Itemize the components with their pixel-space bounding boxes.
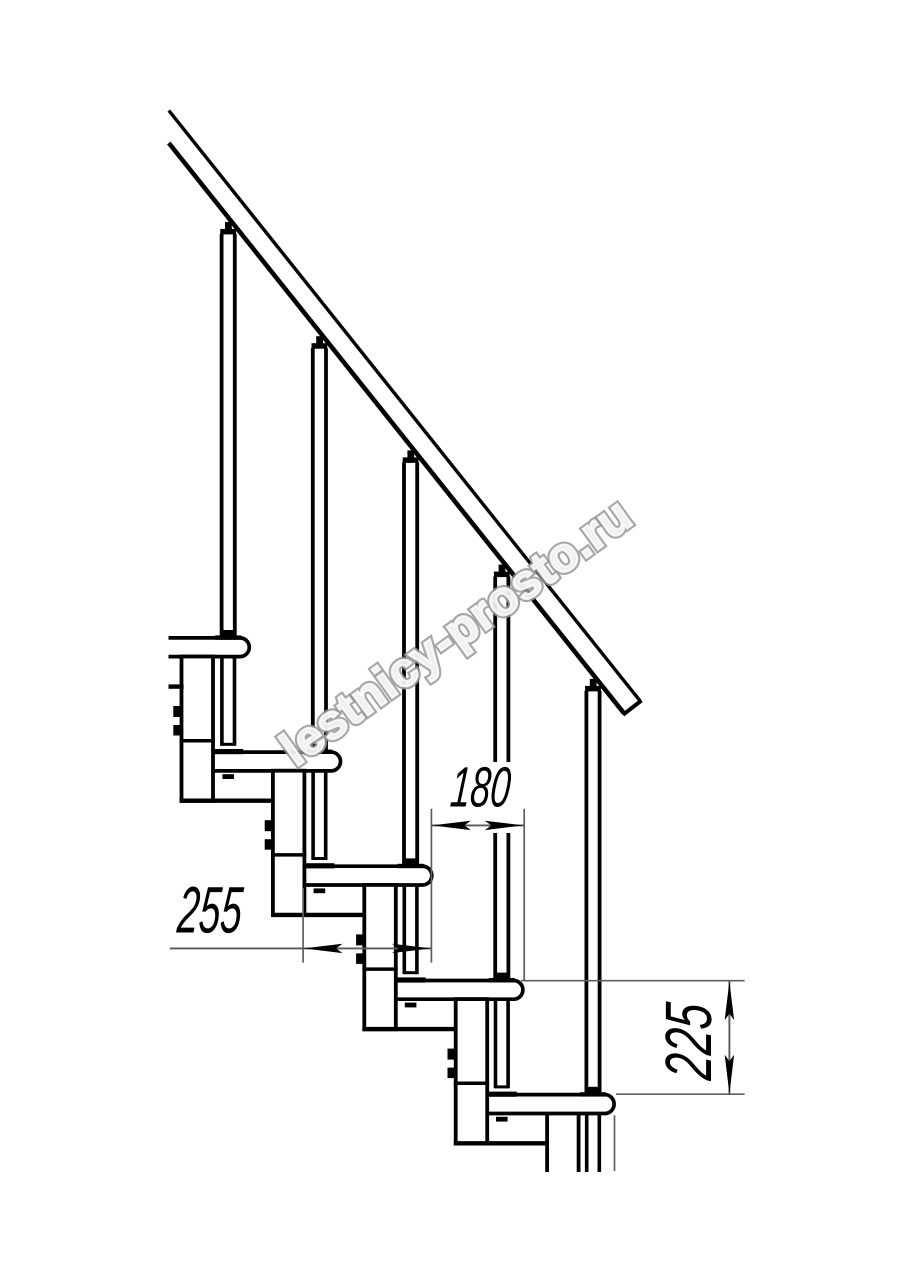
svg-text:180: 180 <box>448 757 514 820</box>
svg-text:225: 225 <box>652 1000 725 1083</box>
svg-text:255: 255 <box>174 874 246 947</box>
